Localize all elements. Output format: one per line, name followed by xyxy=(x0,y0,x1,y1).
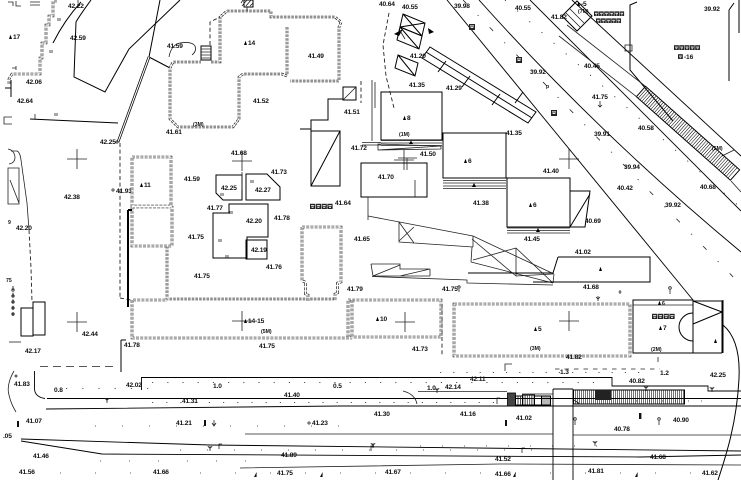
svg-text:41.51: 41.51 xyxy=(344,109,360,116)
svg-text:41.75: 41.75 xyxy=(194,273,210,280)
svg-text:41.40: 41.40 xyxy=(284,392,300,399)
svg-text:41.45: 41.45 xyxy=(524,236,540,243)
svg-text:39.98: 39.98 xyxy=(454,3,470,10)
svg-text:11: 11 xyxy=(144,182,151,189)
svg-text:41.65: 41.65 xyxy=(354,236,370,243)
svg-text:41.70: 41.70 xyxy=(378,174,394,181)
svg-text:41.02: 41.02 xyxy=(516,415,532,422)
svg-text:-5: -5 xyxy=(581,1,587,8)
svg-text:(3M): (3M) xyxy=(530,346,541,352)
svg-text:40.90: 40.90 xyxy=(673,417,689,424)
svg-text:10: 10 xyxy=(380,316,388,323)
svg-text:1.0: 1.0 xyxy=(427,385,436,392)
svg-text:14: 14 xyxy=(248,40,256,47)
svg-text:42.44: 42.44 xyxy=(82,331,98,338)
svg-text:(2M): (2M) xyxy=(651,347,662,353)
svg-text:41.79: 41.79 xyxy=(347,286,363,293)
svg-text:(5M): (5M) xyxy=(261,329,272,335)
svg-text:1.0: 1.0 xyxy=(213,383,222,390)
svg-text:0.5: 0.5 xyxy=(333,383,342,390)
svg-text:41.81: 41.81 xyxy=(588,468,604,475)
svg-text:41.59: 41.59 xyxy=(167,43,183,50)
svg-text:41.82: 41.82 xyxy=(566,354,582,361)
svg-text:41.30: 41.30 xyxy=(374,411,390,418)
svg-text:41.77: 41.77 xyxy=(207,205,223,212)
svg-text:41.40: 41.40 xyxy=(543,168,559,175)
svg-text:17: 17 xyxy=(13,34,21,41)
svg-text:-16: -16 xyxy=(684,54,694,61)
svg-text:(3M): (3M) xyxy=(193,122,204,128)
svg-text:42.14: 42.14 xyxy=(445,384,461,391)
svg-text:41.83: 41.83 xyxy=(14,381,30,388)
svg-text:41.64: 41.64 xyxy=(335,200,351,207)
svg-text:39.94: 39.94 xyxy=(624,164,640,171)
svg-text:41.75: 41.75 xyxy=(592,94,608,101)
svg-text:41.56: 41.56 xyxy=(19,469,35,476)
svg-text:(1M): (1M) xyxy=(399,132,410,138)
svg-text:42.38: 42.38 xyxy=(64,194,80,201)
svg-text:41.62: 41.62 xyxy=(702,470,718,477)
svg-text:39.92: 39.92 xyxy=(704,6,720,13)
svg-text:41.72: 41.72 xyxy=(351,145,367,152)
svg-text:40.42: 40.42 xyxy=(617,185,633,192)
svg-text:41.35: 41.35 xyxy=(409,82,425,89)
svg-text:40.64: 40.64 xyxy=(379,1,395,8)
svg-text:39.91: 39.91 xyxy=(594,131,610,138)
svg-text:41.78: 41.78 xyxy=(124,342,140,349)
svg-text:40.82: 40.82 xyxy=(629,378,645,385)
svg-text:41.59: 41.59 xyxy=(184,176,200,183)
svg-text:41.68: 41.68 xyxy=(583,284,599,291)
svg-text:40.58: 40.58 xyxy=(638,125,654,132)
svg-text:41.68: 41.68 xyxy=(650,454,666,461)
svg-text:42.59: 42.59 xyxy=(70,35,86,42)
svg-text:40.69: 40.69 xyxy=(585,218,601,225)
svg-text:41.93: 41.93 xyxy=(116,188,132,195)
svg-text:41.07: 41.07 xyxy=(26,418,42,425)
svg-text:41.75: 41.75 xyxy=(277,470,293,477)
svg-text:42.25: 42.25 xyxy=(710,372,726,379)
svg-text:39.92: 39.92 xyxy=(665,202,681,209)
svg-text:41.76: 41.76 xyxy=(266,264,282,271)
svg-text:1.2: 1.2 xyxy=(660,370,669,377)
svg-text:41.31: 41.31 xyxy=(182,398,198,405)
svg-text:41.89: 41.89 xyxy=(281,452,297,459)
svg-text:42.06: 42.06 xyxy=(26,79,42,86)
svg-text:41.50: 41.50 xyxy=(420,151,436,158)
svg-text:p: p xyxy=(546,84,549,90)
svg-text:6: 6 xyxy=(533,202,537,209)
svg-text:41.73: 41.73 xyxy=(271,169,287,176)
svg-text:0.8: 0.8 xyxy=(54,387,63,394)
svg-text:41.68: 41.68 xyxy=(231,150,247,157)
svg-text:42.25: 42.25 xyxy=(100,139,116,146)
svg-text:41.02: 41.02 xyxy=(575,249,591,256)
svg-text:9: 9 xyxy=(8,220,11,226)
svg-text:40.68: 40.68 xyxy=(700,184,716,191)
svg-text:41.73: 41.73 xyxy=(412,346,428,353)
svg-text:42.25: 42.25 xyxy=(221,185,237,192)
svg-text:42.22: 42.22 xyxy=(68,3,84,10)
svg-text:39.92: 39.92 xyxy=(530,69,546,76)
svg-text:40.78: 40.78 xyxy=(614,426,630,433)
svg-text:42.20: 42.20 xyxy=(16,225,32,232)
svg-text:42.20: 42.20 xyxy=(246,218,262,225)
svg-text:41.38: 41.38 xyxy=(473,200,489,207)
svg-text:42.19: 42.19 xyxy=(251,247,267,254)
svg-text:6: 6 xyxy=(662,301,665,307)
svg-text:41.35: 41.35 xyxy=(506,130,522,137)
svg-text:41.66: 41.66 xyxy=(153,469,169,476)
svg-text:40.55: 40.55 xyxy=(402,4,418,11)
svg-text:.05: .05 xyxy=(3,433,12,440)
svg-text:8: 8 xyxy=(407,115,411,122)
svg-text:41.75: 41.75 xyxy=(259,343,275,350)
svg-text:41.82: 41.82 xyxy=(551,14,567,21)
svg-text:41.75: 41.75 xyxy=(442,286,458,293)
svg-text:41.61: 41.61 xyxy=(166,129,182,136)
svg-text:(7M): (7M) xyxy=(578,9,589,15)
svg-text:41.16: 41.16 xyxy=(460,411,476,418)
svg-text:42.11: 42.11 xyxy=(470,376,486,383)
svg-text:7: 7 xyxy=(663,325,667,332)
svg-text:41.21: 41.21 xyxy=(176,420,192,427)
svg-text:42.02: 42.02 xyxy=(126,382,142,389)
svg-text:14-15: 14-15 xyxy=(248,318,265,325)
svg-text:41.46: 41.46 xyxy=(33,453,49,460)
svg-text:41.67: 41.67 xyxy=(385,469,401,476)
svg-text:75: 75 xyxy=(6,278,12,284)
svg-text:5: 5 xyxy=(538,326,542,333)
svg-text:41.23: 41.23 xyxy=(312,420,328,427)
svg-text:42.64: 42.64 xyxy=(17,98,33,105)
svg-text:41.52: 41.52 xyxy=(495,456,511,463)
svg-text:41.52: 41.52 xyxy=(253,98,269,105)
svg-text:42.17: 42.17 xyxy=(25,348,41,355)
svg-text:6: 6 xyxy=(468,158,472,165)
svg-text:1.3: 1.3 xyxy=(560,369,569,376)
svg-text:41.78: 41.78 xyxy=(274,215,290,222)
svg-text:40.55: 40.55 xyxy=(515,5,531,12)
svg-text:41.29: 41.29 xyxy=(446,85,462,92)
svg-text:41.66: 41.66 xyxy=(495,471,511,478)
svg-text:41.20: 41.20 xyxy=(410,53,426,60)
svg-text:41.49: 41.49 xyxy=(308,53,324,60)
svg-text:41.75: 41.75 xyxy=(188,234,204,241)
svg-text:42.27: 42.27 xyxy=(255,187,271,194)
